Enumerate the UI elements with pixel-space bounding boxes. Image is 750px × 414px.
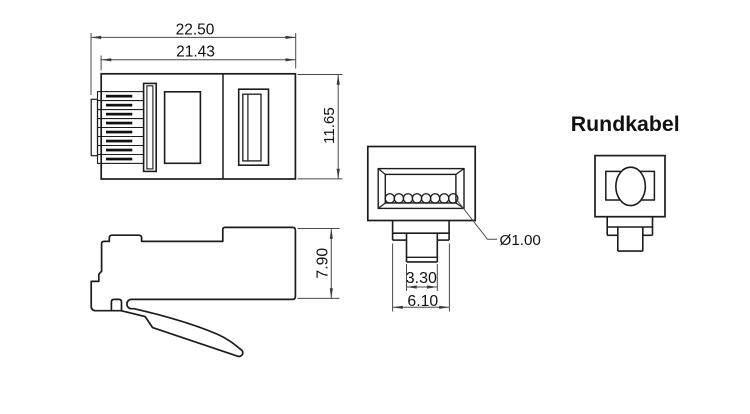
svg-text:22.50: 22.50 xyxy=(176,21,215,38)
svg-text:Ø1.00: Ø1.00 xyxy=(500,232,541,249)
svg-text:Rundkabel: Rundkabel xyxy=(571,112,680,136)
svg-text:7.90: 7.90 xyxy=(314,248,331,279)
svg-text:21.43: 21.43 xyxy=(176,44,215,61)
svg-text:11.65: 11.65 xyxy=(321,107,338,144)
svg-text:6.10: 6.10 xyxy=(407,293,438,310)
svg-text:3.30: 3.30 xyxy=(406,270,437,287)
